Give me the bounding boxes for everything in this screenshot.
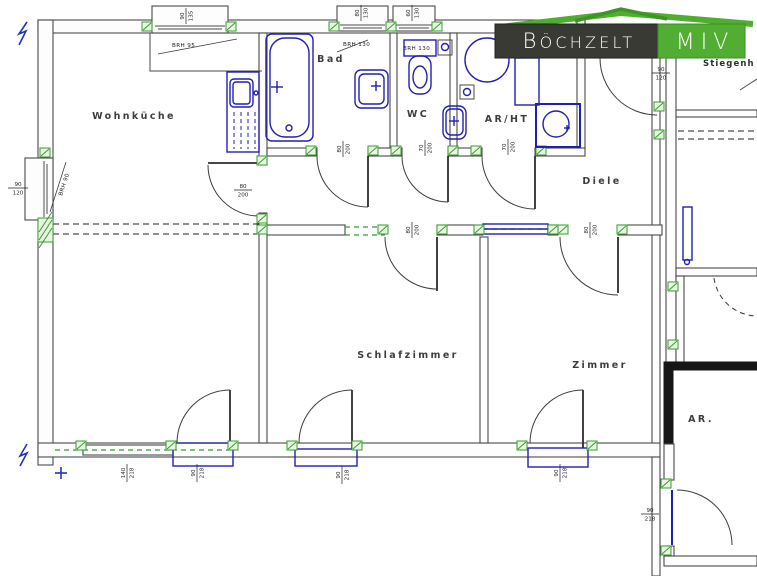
dim-door-bad: 80200: [337, 141, 352, 157]
floor-plan-page: Wohnküche Bad WC AR/HT Diele Schlafzimme…: [0, 0, 757, 576]
room-label-zimmer: Zimmer: [572, 360, 627, 371]
window-left-wall: [25, 158, 53, 220]
duct-shaft: [515, 58, 539, 105]
svg-text:80: 80: [355, 9, 361, 17]
room-label-wohnkueche: Wohnküche: [92, 111, 176, 122]
dashed-lines: [53, 79, 757, 450]
lightning-symbol-bottom: [20, 444, 27, 466]
svg-text:80: 80: [584, 226, 590, 234]
svg-text:80: 80: [406, 226, 412, 234]
svg-text:80: 80: [337, 145, 343, 153]
svg-text:200: 200: [346, 143, 352, 154]
logo-company-name: BÖCHZELT: [523, 29, 636, 53]
svg-text:200: 200: [428, 142, 434, 153]
dim-door-zimmer: 80200: [584, 222, 599, 238]
ar-top-wall: [664, 362, 757, 370]
svg-text:135: 135: [189, 10, 195, 21]
svg-text:218: 218: [345, 469, 351, 480]
ar-left-wall: [664, 362, 673, 444]
room-label-schlafzimmer: Schlafzimmer: [357, 350, 459, 361]
washbasin-bad: [355, 70, 388, 108]
room-label-wc: WC: [407, 109, 429, 120]
floor-plan-canvas: Wohnküche Bad WC AR/HT Diele Schlafzimme…: [0, 0, 757, 576]
svg-text:90: 90: [180, 12, 186, 20]
brh-label-bad-window: BRH 130: [343, 42, 370, 48]
svg-text:218: 218: [563, 467, 569, 478]
interior-window-zimmer: [483, 224, 548, 234]
svg-text:120: 120: [13, 191, 24, 197]
lightning-symbol-top: [19, 22, 27, 45]
svg-text:60: 60: [406, 9, 412, 17]
brh-label-left-window: BRH 90: [58, 173, 71, 197]
door-kitchen: [208, 163, 259, 216]
room-label-ar: AR.: [688, 414, 714, 425]
brh-label-top-window: BRH 95: [172, 43, 195, 49]
door-bad: [317, 156, 368, 207]
stairwell-door-arc: [714, 278, 757, 316]
svg-text:218: 218: [200, 467, 206, 478]
door-zimmer: [560, 237, 618, 295]
company-logo: BÖCHZELT MIV: [495, 9, 753, 58]
dim-door-arht: 70200: [502, 139, 517, 155]
svg-text:130: 130: [364, 7, 370, 18]
dim-door-kitchen: 80200: [234, 184, 252, 199]
brh-label-wc-window: BRH 130: [403, 46, 430, 52]
svg-text:218: 218: [645, 517, 656, 523]
survey-cross: [55, 467, 67, 479]
door-schlafzimmer: [385, 237, 437, 291]
svg-text:80: 80: [239, 184, 247, 190]
walls: [38, 20, 757, 576]
kitchen-unit: [227, 72, 259, 152]
dim-door-wc: 70200: [419, 140, 434, 156]
window-bad: [337, 6, 388, 31]
dim-balcony-door-schlaf: 90218: [336, 466, 351, 484]
svg-text:200: 200: [415, 224, 421, 235]
room-label-arht: AR/HT: [485, 114, 530, 125]
logo-unit-name: MIV: [676, 30, 735, 55]
svg-text:140: 140: [121, 467, 127, 478]
radiator: [683, 207, 692, 265]
svg-text:200: 200: [511, 141, 517, 152]
svg-text:130: 130: [415, 7, 421, 18]
window-bottom-left: [83, 445, 173, 455]
svg-text:120: 120: [656, 76, 667, 82]
room-label-bad: Bad: [317, 54, 345, 65]
svg-text:90: 90: [554, 469, 560, 477]
door-ar: [672, 490, 732, 545]
dim-door-schlafzimmer: 80200: [406, 222, 421, 238]
door-entrance: [600, 54, 658, 115]
washing-machine: [536, 104, 580, 147]
room-label-stiegenhaus: Stiegenh: [703, 59, 755, 69]
room-label-diele: Diele: [582, 176, 621, 187]
svg-text:90: 90: [14, 182, 22, 188]
door-arht: [482, 156, 535, 209]
svg-text:90: 90: [646, 508, 654, 514]
svg-text:70: 70: [502, 143, 508, 151]
dim-balcony-door-wohn: 90218: [191, 464, 206, 482]
bathtub: [266, 34, 313, 141]
svg-text:200: 200: [238, 193, 249, 199]
svg-text:70: 70: [419, 144, 425, 152]
svg-text:90: 90: [336, 471, 342, 479]
svg-text:90: 90: [191, 469, 197, 477]
svg-text:90: 90: [657, 67, 665, 73]
dim-window-bottom: 140218: [121, 464, 136, 482]
door-wc: [402, 156, 448, 202]
svg-text:200: 200: [593, 224, 599, 235]
svg-text:218: 218: [130, 467, 136, 478]
